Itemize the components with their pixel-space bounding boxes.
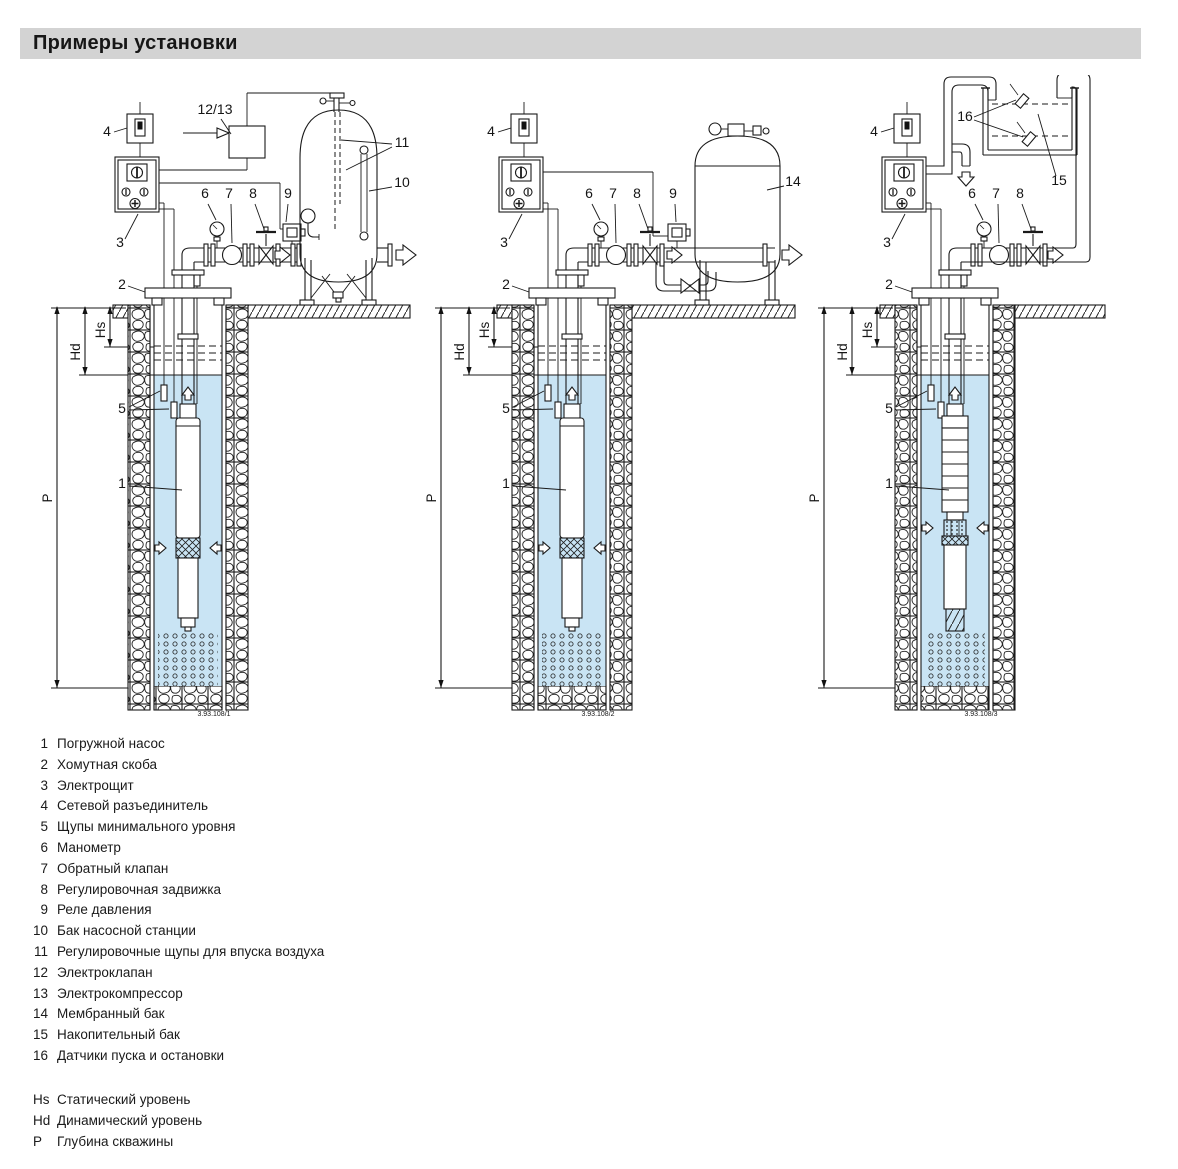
legend-item-label: Электроклапан: [57, 963, 153, 984]
legend-item-label: Мембранный бак: [57, 1004, 165, 1025]
figure-number: 3.93.108/3: [964, 711, 997, 718]
legend-item-label: Щупы минимального уровня: [57, 817, 235, 838]
legend-item: 5Щупы минимального уровня: [30, 817, 324, 838]
legend-item-number: 14: [30, 1004, 48, 1025]
abbreviation-label: Глубина скважины: [57, 1131, 173, 1152]
callout-label: 5: [502, 400, 510, 416]
legend-item: 10Бак насосной станции: [30, 921, 324, 942]
callout-label: 14: [785, 173, 801, 189]
legend-item-label: Погружной насос: [57, 734, 165, 755]
outlet-conduit: [926, 77, 996, 186]
membrane-tank: [656, 123, 802, 305]
mains-disconnect: [511, 102, 537, 157]
mains-disconnect: [894, 102, 920, 157]
control-panel: [115, 157, 159, 212]
callout-label: 10: [394, 174, 410, 190]
legend-item: 16Датчики пуска и остановки: [30, 1046, 324, 1067]
legend-item-number: 8: [30, 880, 48, 901]
abbreviation-item: PГлубина скважины: [33, 1131, 202, 1152]
callout-label: 7: [609, 185, 617, 201]
dim-label-dynamic-level: Hd: [452, 343, 467, 360]
perforated-screen: [158, 632, 218, 686]
callout-label: 3: [116, 234, 124, 250]
legend-item: 13Электрокомпрессор: [30, 984, 324, 1005]
legend-item-label: Сетевой разъединитель: [57, 796, 208, 817]
legend-item-number: 3: [30, 776, 48, 797]
legend-item-label: Обратный клапан: [57, 859, 168, 880]
legend-item: 7Обратный клапан: [30, 859, 324, 880]
legend-item: 8Регулировочная задвижка: [30, 880, 324, 901]
callout-label: 8: [249, 185, 257, 201]
legend-item-number: 16: [30, 1046, 48, 1067]
pressure-switch: [283, 224, 305, 244]
abbreviation-key: Hd: [33, 1110, 57, 1131]
callout-label: 15: [1051, 172, 1067, 188]
callout-label: 16: [957, 108, 973, 124]
ground-surface: [113, 305, 410, 318]
page-title: Примеры установки: [33, 32, 238, 55]
diagram-2: PHdHs432516789143.93.108/2: [424, 102, 802, 718]
dim-label-dynamic-level: Hd: [835, 343, 850, 360]
abbreviation-label: Статический уровень: [57, 1089, 190, 1110]
callout-label: 5: [885, 400, 893, 416]
legend-item: 14Мембранный бак: [30, 1004, 324, 1025]
callout-label: 6: [585, 185, 593, 201]
legend-item-number: 10: [30, 921, 48, 942]
legend-item-label: Регулировочная задвижка: [57, 880, 221, 901]
legend-item-label: Манометр: [57, 838, 121, 859]
dim-label-static-level: Hs: [860, 322, 875, 339]
legend-item-number: 1: [30, 734, 48, 755]
callout-label: 3: [883, 234, 891, 250]
legend-item-number: 9: [30, 900, 48, 921]
legend-item-label: Электрокомпрессор: [57, 984, 183, 1005]
tank-top-valve: [330, 93, 344, 98]
diagram-3: PHdHs4325167816153.93.108/3: [807, 75, 1105, 718]
dim-label-well-depth: P: [424, 493, 439, 502]
solenoid-compressor-unit: [159, 93, 337, 229]
callout-label: 9: [669, 185, 677, 201]
legend-item: 11Регулировочные щупы для впуска воздуха: [30, 942, 324, 963]
abbreviation-item: HsСтатический уровень: [33, 1089, 202, 1110]
legend-item-label: Реле давления: [57, 900, 152, 921]
legend-item-number: 5: [30, 817, 48, 838]
callout-label: 6: [201, 185, 209, 201]
legend-item: 15Накопительный бак: [30, 1025, 324, 1046]
legend-item-label: Хомутная скоба: [57, 755, 157, 776]
clamp-bracket: [912, 288, 998, 305]
tank-gauge: [301, 209, 315, 223]
surface-pipework: [957, 222, 1073, 266]
legend-item-label: Электрощит: [57, 776, 134, 797]
legend-item-number: 2: [30, 755, 48, 776]
abbreviation-key: Hs: [33, 1089, 57, 1110]
legend-item-label: Датчики пуска и остановки: [57, 1046, 224, 1067]
callout-label: 3: [500, 234, 508, 250]
legend-item: 2Хомутная скоба: [30, 755, 324, 776]
dim-label-well-depth: P: [807, 493, 822, 502]
legend-item: 6Манометр: [30, 838, 324, 859]
legend-item-number: 15: [30, 1025, 48, 1046]
legend-list: 1Погружной насос2Хомутная скоба3Электрощ…: [30, 734, 324, 1067]
legend-item-number: 12: [30, 963, 48, 984]
callout-label: 7: [225, 185, 233, 201]
legend-item-label: Регулировочные щупы для впуска воздуха: [57, 942, 324, 963]
legend-item-number: 4: [30, 796, 48, 817]
legend-item: 4Сетевой разъединитель: [30, 796, 324, 817]
perforated-screen: [925, 632, 985, 686]
control-panel: [882, 157, 926, 212]
callout-label: 2: [885, 276, 893, 292]
abbreviation-key: P: [33, 1131, 57, 1152]
clamp-bracket: [145, 288, 231, 305]
section-title-bar: Примеры установки: [20, 28, 1141, 59]
callout-label: 9: [284, 185, 292, 201]
legend-item-label: Накопительный бак: [57, 1025, 180, 1046]
legend-item-label: Бак насосной станции: [57, 921, 196, 942]
callout-label: 4: [103, 123, 111, 139]
dim-label-well-depth: P: [40, 493, 55, 502]
pressure-tank: [300, 93, 416, 305]
callout-label: 2: [502, 276, 510, 292]
abbreviation-list: HsСтатический уровеньHdДинамический уров…: [33, 1089, 202, 1153]
callout-label: 8: [633, 185, 641, 201]
callout-label: 1: [118, 475, 126, 491]
dim-label-static-level: Hs: [477, 322, 492, 339]
legend-item: 1Погружной насос: [30, 734, 324, 755]
document-page: { "header": { "title": "Примеры установк…: [0, 0, 1178, 1169]
clamp-bracket: [529, 288, 615, 305]
legend-item-number: 11: [30, 942, 48, 963]
figure-number: 3.93.108/2: [581, 711, 614, 718]
ground-surface: [497, 305, 795, 318]
callout-label: 12/13: [197, 101, 232, 117]
diagram-1: PHdHs43251678912/1311103.93.108/1: [40, 93, 416, 718]
dim-label-dynamic-level: Hd: [68, 343, 83, 360]
callout-label: 4: [870, 123, 878, 139]
mains-disconnect: [127, 102, 153, 157]
callout-label: 8: [1016, 185, 1024, 201]
legend-item-number: 6: [30, 838, 48, 859]
abbreviation-item: HdДинамический уровень: [33, 1110, 202, 1131]
callout-label: 2: [118, 276, 126, 292]
callout-label: 4: [487, 123, 495, 139]
pressure-switch: [543, 172, 690, 248]
legend-item: 12Электроклапан: [30, 963, 324, 984]
callout-label: 1: [885, 475, 893, 491]
callout-label: 11: [395, 134, 410, 150]
legend-item: 3Электрощит: [30, 776, 324, 797]
control-panel: [499, 157, 543, 212]
legend-item: 9Реле давления: [30, 900, 324, 921]
perforated-screen: [542, 632, 602, 686]
callout-label: 5: [118, 400, 126, 416]
installation-diagrams: PHdHs43251678912/1311103.93.108/1PHdHs43…: [0, 75, 1178, 725]
callout-label: 6: [968, 185, 976, 201]
figure-number: 3.93.108/1: [197, 711, 230, 718]
legend-item-number: 13: [30, 984, 48, 1005]
callout-label: 7: [992, 185, 1000, 201]
legend-item-number: 7: [30, 859, 48, 880]
check-valve: [607, 246, 626, 265]
check-valve: [223, 246, 242, 265]
dim-label-static-level: Hs: [93, 322, 108, 339]
callout-label: 1: [502, 475, 510, 491]
abbreviation-label: Динамический уровень: [57, 1110, 202, 1131]
